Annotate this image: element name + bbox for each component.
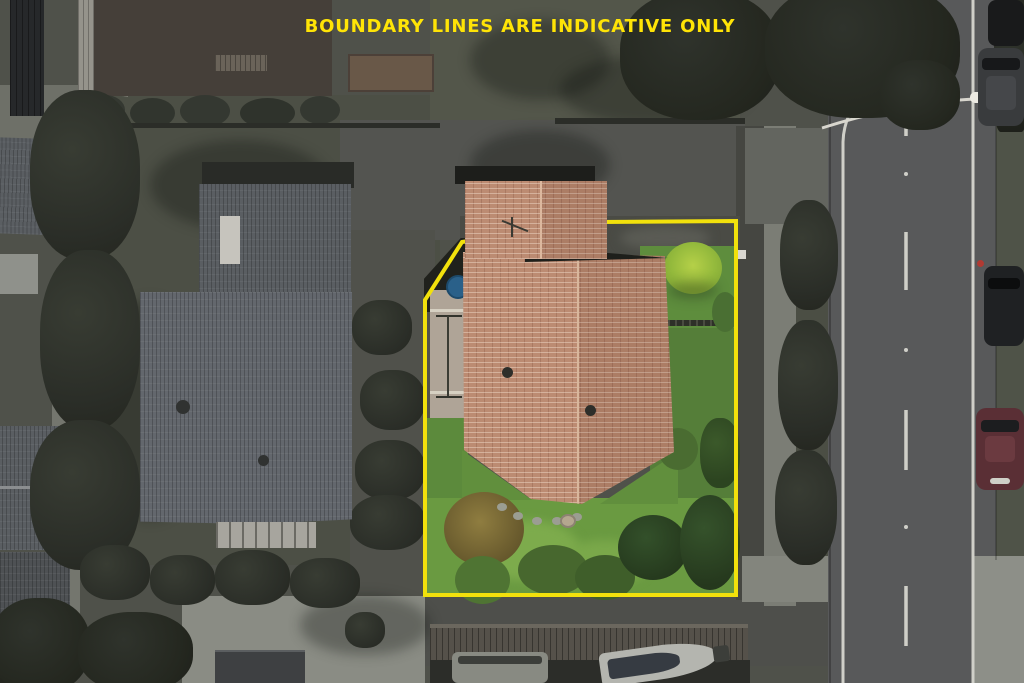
house-gable-roof <box>465 181 607 259</box>
aerial-photo: BOUNDARY LINES ARE INDICATIVE ONLY <box>0 0 1024 683</box>
boundary-disclaimer-text: BOUNDARY LINES ARE INDICATIVE ONLY <box>8 16 1024 37</box>
gable-ridge <box>540 181 542 259</box>
gable-shade-right <box>542 181 607 259</box>
tv-antenna <box>502 220 529 232</box>
boundary-overlay <box>0 0 1024 683</box>
boundary-polygon <box>425 221 736 595</box>
tv-antenna-arm <box>511 217 513 237</box>
